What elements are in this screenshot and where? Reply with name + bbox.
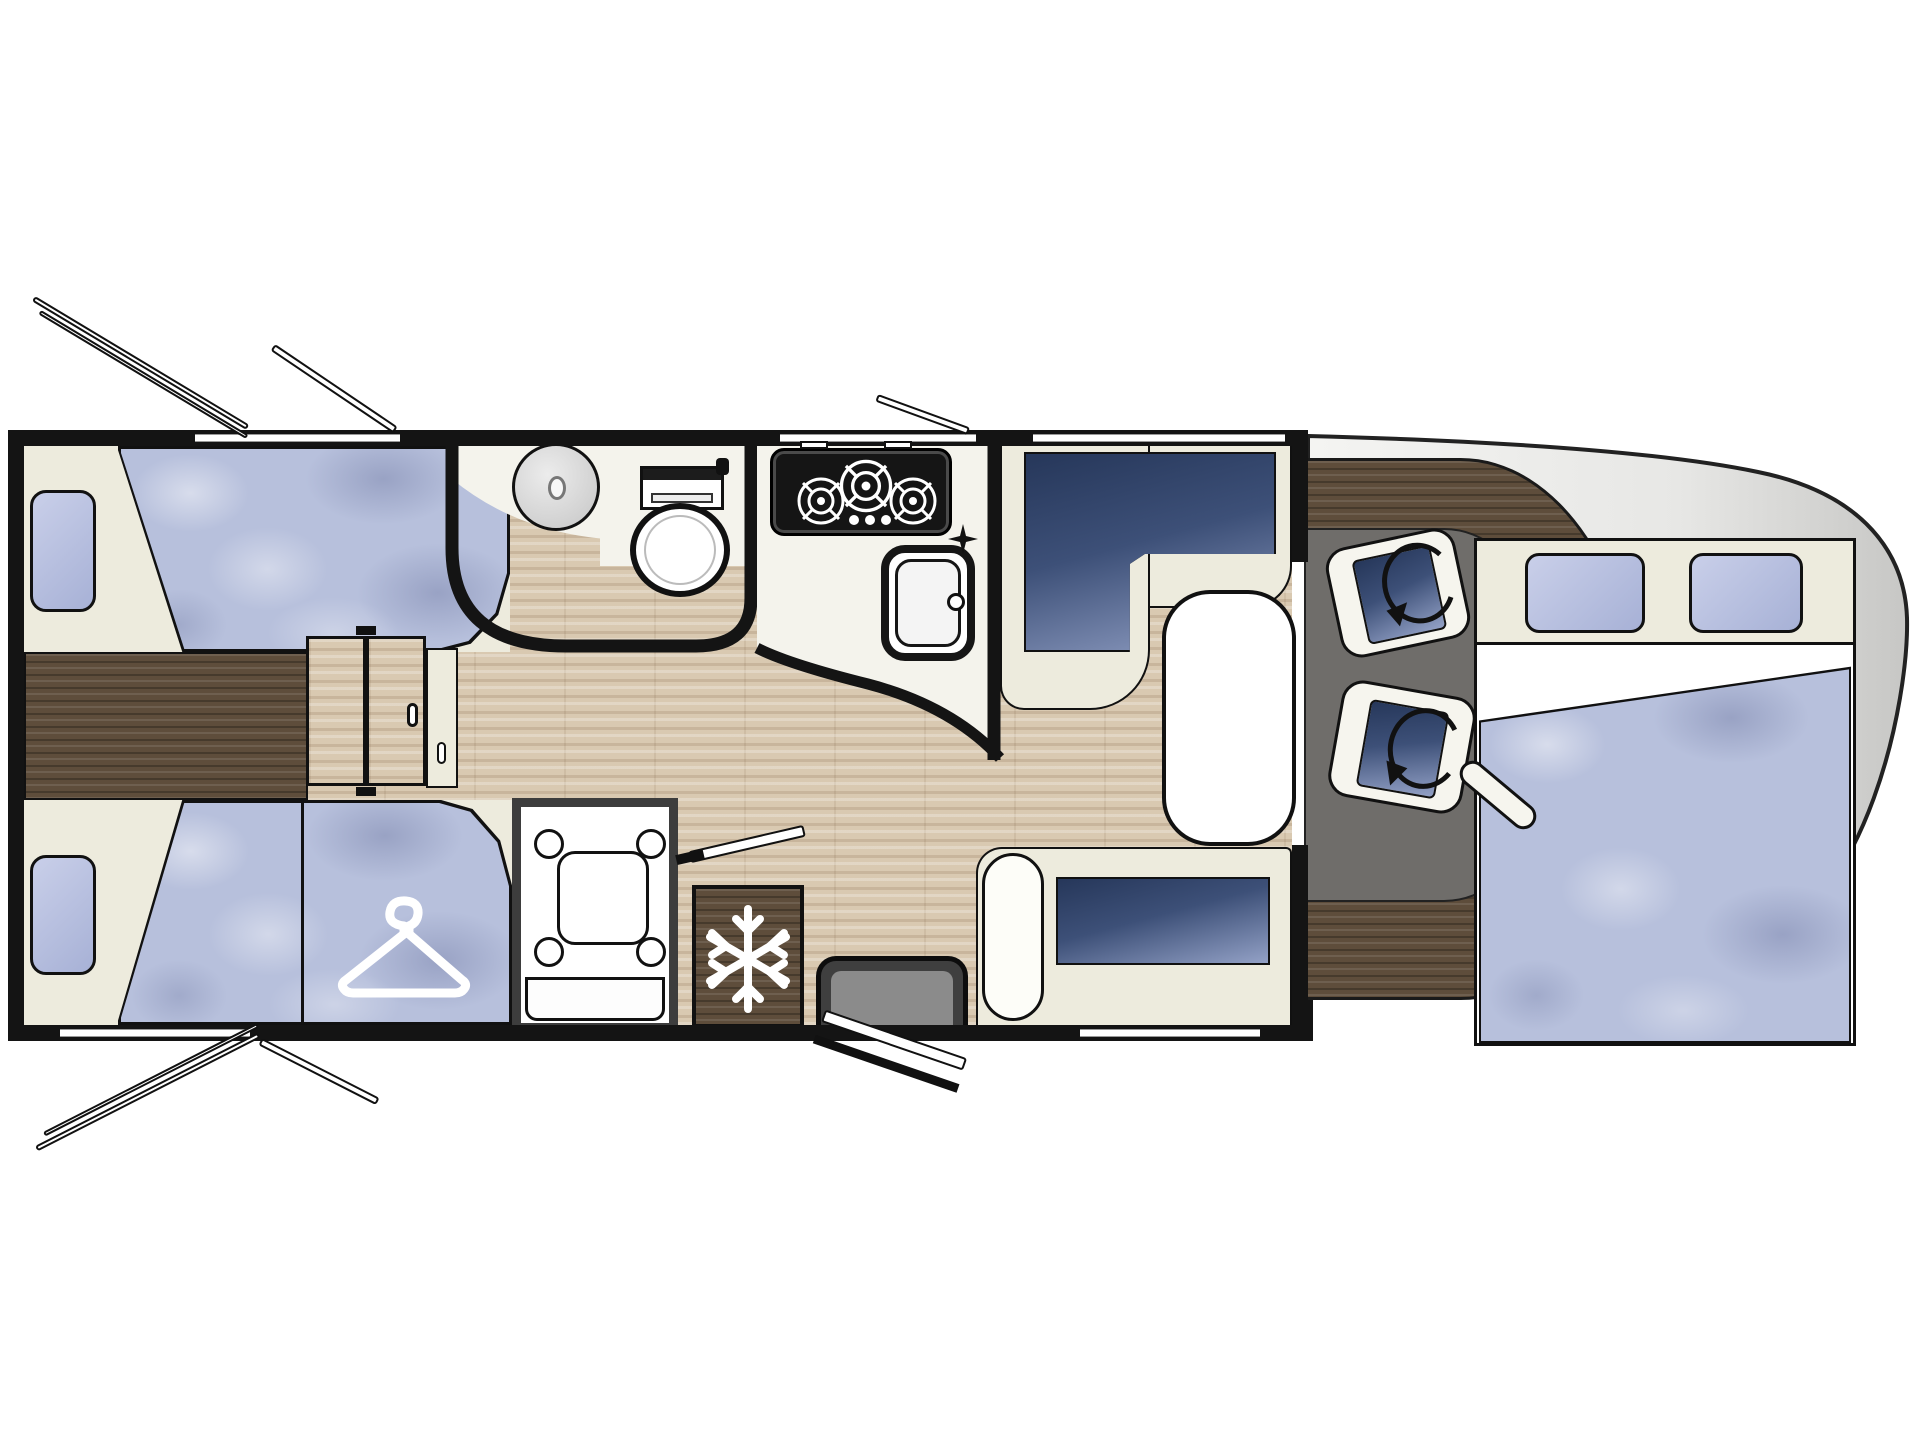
kitchen-sink [881,545,975,661]
wall-right-lower [1292,845,1308,1041]
tap-cross-icon [948,524,978,554]
kitchen-hob [770,448,952,536]
burner-icon [887,475,939,527]
shower [512,798,678,1032]
toilet-knob [716,458,729,475]
side-bench-armrest [982,853,1044,1021]
wall-right-upper [1292,430,1308,562]
floorplan-canvas [0,0,1920,1440]
toilet-bowl [630,503,730,597]
hob-handle [800,441,828,449]
dinette-table [1162,590,1296,846]
fridge [692,885,804,1028]
bathroom-basin [512,443,600,531]
wall-window [195,434,400,442]
wall-left [8,430,24,1041]
shower-drawer [525,977,665,1021]
sink-tap [947,593,965,611]
wall-window [1033,434,1285,442]
wall-window [1080,1029,1260,1037]
hob-handle [884,441,912,449]
wall-window [60,1029,250,1037]
kitchen-counter [0,0,1920,1440]
snowflake-icon [706,903,790,1015]
side-bench-cushion [1056,877,1270,965]
